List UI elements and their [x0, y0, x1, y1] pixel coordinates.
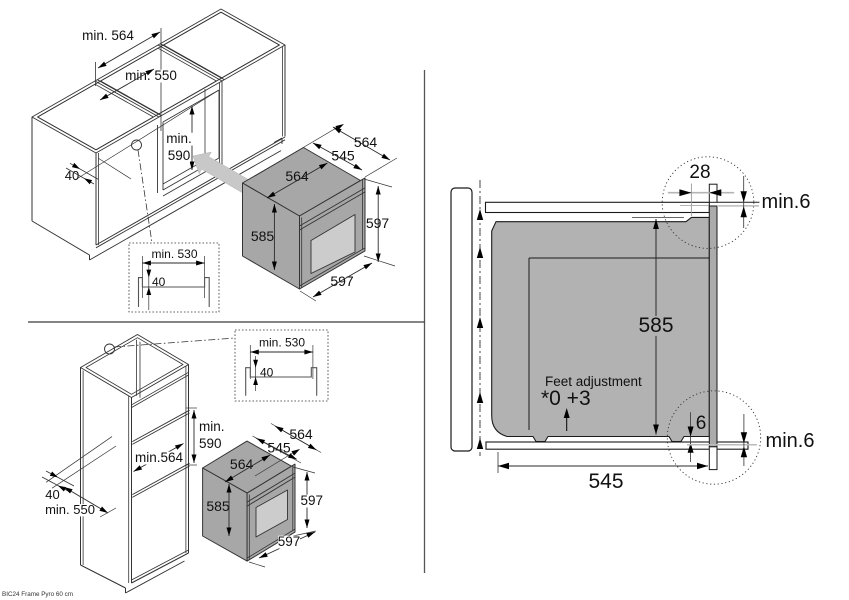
svg-text:585: 585: [251, 228, 275, 244]
svg-text:545: 545: [588, 470, 623, 493]
svg-text:min. 530: min. 530: [151, 247, 197, 261]
svg-text:564: 564: [230, 456, 254, 472]
svg-text:28: 28: [689, 162, 710, 183]
svg-text:40: 40: [152, 275, 166, 289]
svg-text:min.6: min.6: [766, 430, 815, 452]
svg-text:590: 590: [199, 436, 222, 451]
svg-text:585: 585: [638, 314, 673, 337]
svg-text:min.6: min.6: [762, 191, 811, 213]
svg-text:min.: min.: [199, 419, 225, 434]
svg-text:BIC24 Frame Pyro 60 cm: BIC24 Frame Pyro 60 cm: [2, 591, 73, 598]
svg-text:40: 40: [65, 168, 79, 183]
svg-text:597: 597: [366, 215, 390, 231]
svg-text:590: 590: [168, 148, 191, 163]
svg-text:min. 550: min. 550: [45, 502, 95, 517]
svg-text:min. 530: min. 530: [259, 336, 305, 350]
svg-text:min.: min.: [166, 131, 192, 146]
svg-text:597: 597: [301, 493, 324, 508]
svg-text:597: 597: [278, 534, 301, 549]
svg-text:545: 545: [267, 440, 291, 456]
svg-text:585: 585: [206, 498, 230, 514]
svg-text:*0 +3: *0 +3: [541, 387, 591, 410]
svg-text:6: 6: [696, 413, 707, 434]
svg-text:40: 40: [45, 487, 59, 502]
svg-text:min. 564: min. 564: [82, 28, 134, 43]
svg-text:564: 564: [354, 134, 378, 150]
svg-text:40: 40: [260, 366, 274, 380]
svg-text:564: 564: [289, 426, 313, 442]
svg-text:min.564: min.564: [135, 450, 184, 465]
